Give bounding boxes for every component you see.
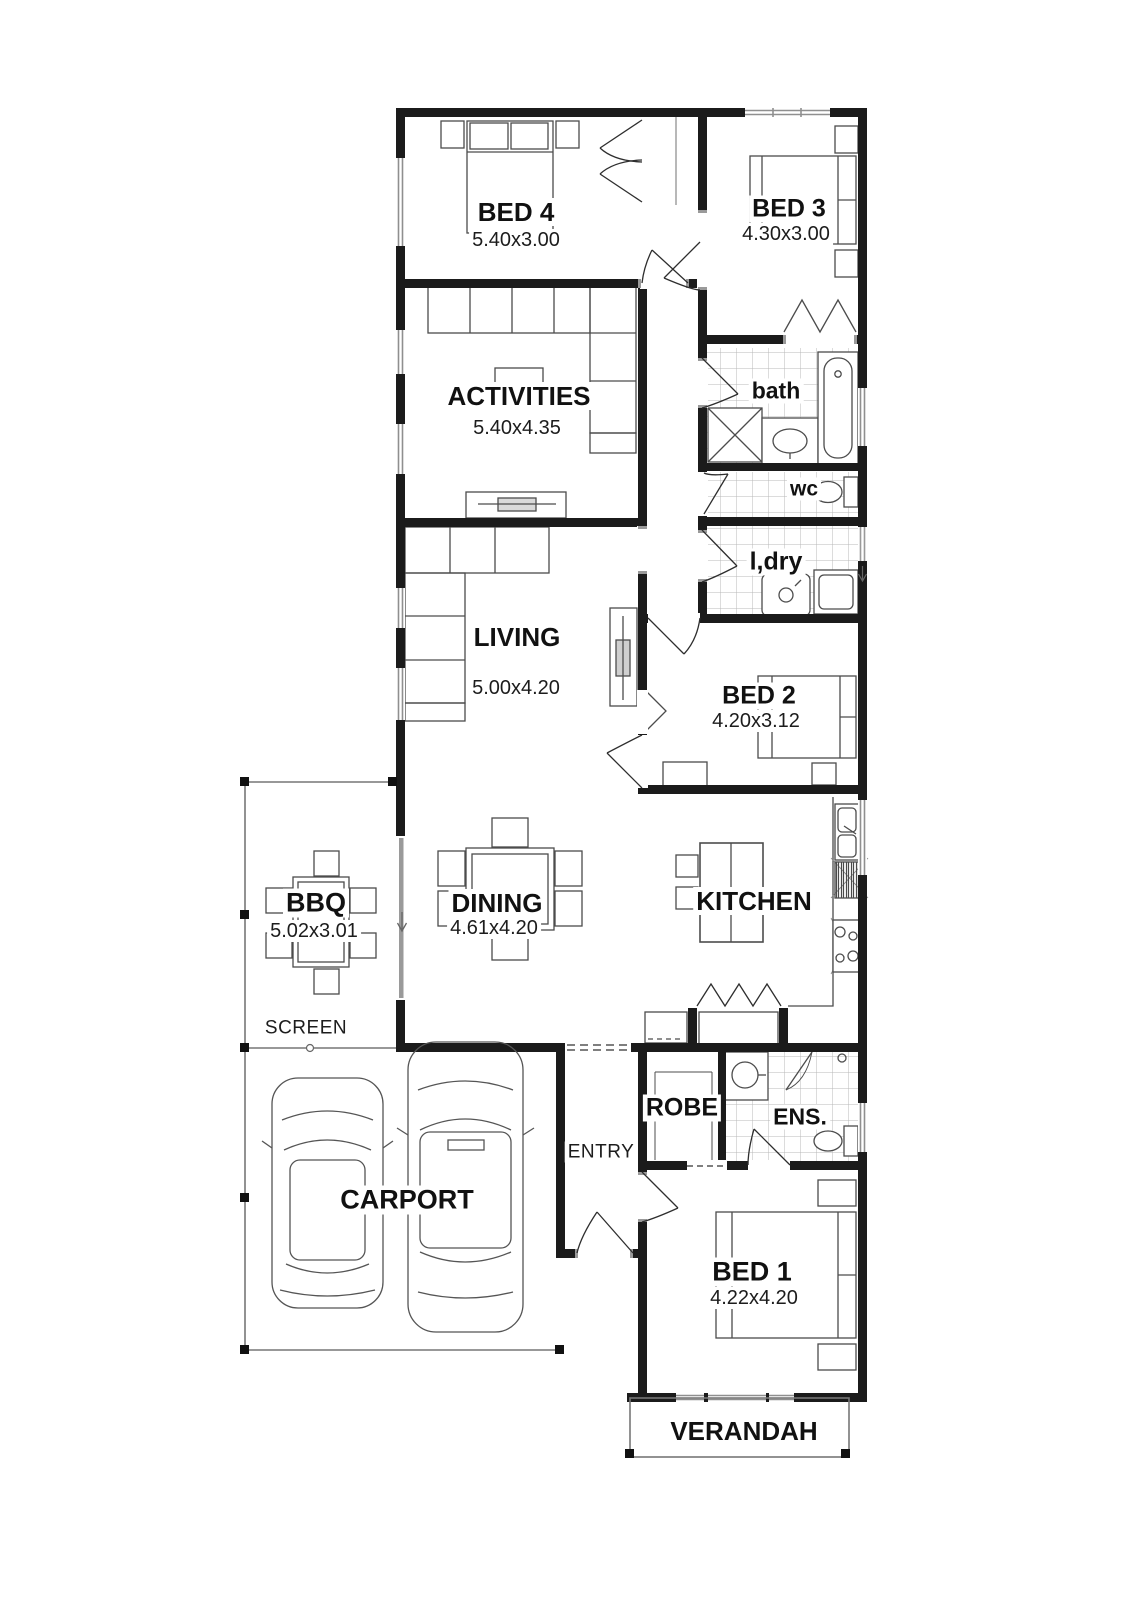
room-label-robe: ROBE	[643, 1095, 721, 1122]
furniture-layer	[266, 121, 868, 1370]
room-dims-bed3: 4.30x3.00	[739, 223, 833, 245]
area-dims-bbq: 5.02x3.01	[267, 920, 361, 942]
area-label-entry: ENTRY	[565, 1142, 638, 1163]
room-label-bath: bath	[749, 379, 804, 404]
room-label-laundry: l,dry	[747, 549, 806, 576]
area-label-bbq: BBQ	[283, 889, 349, 918]
room-label-bed3: BED 3	[749, 196, 829, 223]
room-label-wc: wc	[787, 478, 821, 501]
room-dims-bed4: 5.40x3.00	[469, 229, 563, 251]
room-label-ensuite: ENS.	[770, 1105, 830, 1130]
room-label-dining: DINING	[449, 889, 546, 917]
room-label-bed4: BED 4	[475, 198, 558, 226]
floor-plan-drawing	[0, 0, 1131, 1600]
room-dims-living: 5.00x4.20	[469, 677, 563, 699]
room-label-bed1: BED 1	[709, 1258, 795, 1287]
area-label-verandah: VERANDAH	[667, 1417, 820, 1445]
room-dims-bed2: 4.20x3.12	[709, 710, 803, 732]
area-label-carport: CARPORT	[337, 1186, 477, 1215]
room-label-activities: ACTIVITIES	[444, 382, 593, 410]
room-dims-dining: 4.61x4.20	[447, 917, 541, 939]
room-dims-activities: 5.40x4.35	[470, 417, 564, 439]
room-label-bed2: BED 2	[719, 683, 799, 710]
room-label-living: LIVING	[471, 623, 564, 651]
area-label-screen: SCREEN	[262, 1018, 350, 1039]
floor-plan-canvas: BED 4 5.40x3.00 BED 3 4.30x3.00 ACTIVITI…	[0, 0, 1131, 1600]
room-dims-bed1: 4.22x4.20	[707, 1287, 801, 1309]
room-label-kitchen: KITCHEN	[693, 887, 815, 915]
